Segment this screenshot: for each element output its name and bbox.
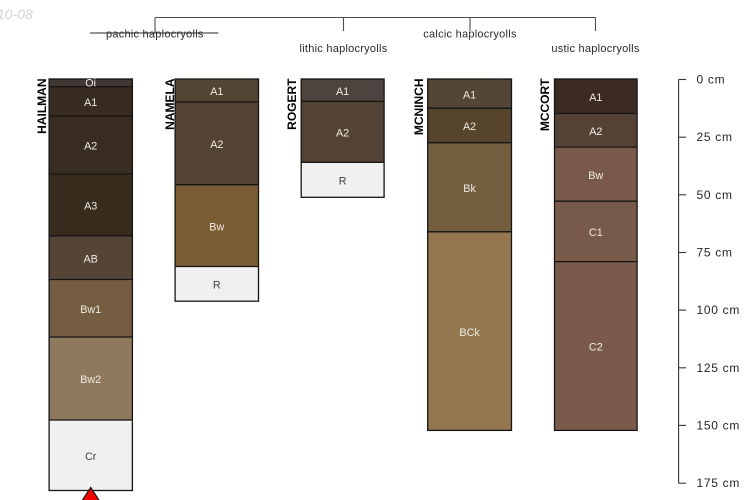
svg-text:calcic haplocryolls: calcic haplocryolls	[423, 28, 517, 40]
svg-text:ROGERT: ROGERT	[285, 78, 299, 130]
svg-text:50 cm: 50 cm	[697, 188, 733, 202]
svg-text:25 cm: 25 cm	[697, 130, 733, 144]
svg-text:0 cm: 0 cm	[697, 73, 726, 87]
svg-text:A1: A1	[336, 86, 349, 98]
svg-text:R: R	[213, 280, 221, 292]
svg-text:175 cm: 175 cm	[697, 476, 741, 490]
svg-text:Bk: Bk	[463, 183, 476, 195]
svg-text:Oi: Oi	[85, 78, 96, 90]
svg-text:R: R	[339, 176, 347, 188]
svg-text:A1: A1	[589, 92, 602, 104]
svg-text:Bw1: Bw1	[80, 304, 101, 316]
svg-text:Cr: Cr	[85, 451, 97, 463]
svg-text:A2: A2	[589, 126, 602, 138]
svg-text:C1: C1	[589, 227, 603, 239]
svg-text:BCk: BCk	[459, 327, 480, 339]
svg-text:A1: A1	[84, 97, 97, 109]
svg-text:10-08: 10-08	[0, 6, 33, 22]
svg-text:125 cm: 125 cm	[697, 361, 741, 375]
svg-text:AB: AB	[83, 253, 97, 265]
svg-text:MCNINCH: MCNINCH	[412, 79, 426, 136]
svg-text:A3: A3	[84, 201, 97, 213]
svg-text:Bw: Bw	[209, 221, 224, 233]
svg-text:75 cm: 75 cm	[697, 246, 733, 260]
svg-text:HAILMAN: HAILMAN	[35, 79, 49, 134]
svg-text:A1: A1	[210, 86, 223, 98]
svg-text:A2: A2	[210, 139, 223, 151]
svg-text:Bw2: Bw2	[80, 374, 101, 386]
svg-text:A2: A2	[336, 128, 349, 140]
svg-text:A1: A1	[463, 89, 476, 101]
svg-text:MCCORT: MCCORT	[538, 78, 552, 131]
svg-text:100 cm: 100 cm	[697, 303, 741, 317]
svg-text:150 cm: 150 cm	[697, 418, 741, 432]
svg-text:lithic haplocryolls: lithic haplocryolls	[300, 43, 388, 55]
svg-text:A2: A2	[84, 141, 97, 153]
svg-text:pachic haplocryolls: pachic haplocryolls	[106, 28, 204, 40]
svg-text:ustic haplocryolls: ustic haplocryolls	[551, 43, 640, 55]
svg-text:A2: A2	[463, 121, 476, 133]
svg-text:Bw: Bw	[588, 170, 603, 182]
svg-text:C2: C2	[589, 342, 603, 354]
